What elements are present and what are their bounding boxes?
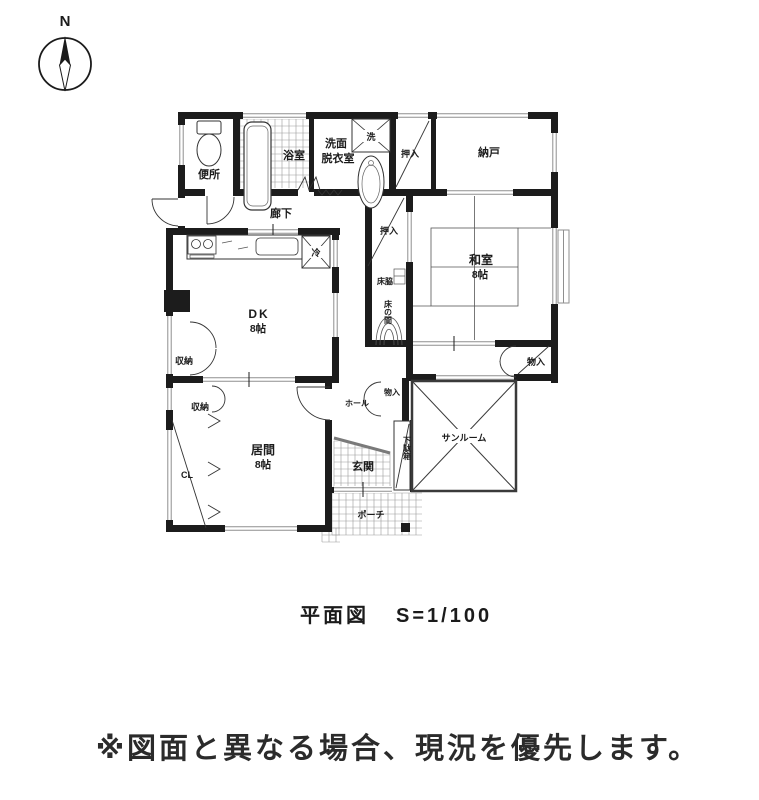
caption-scale: S=1/100 [396, 605, 492, 627]
toilet-bowl [197, 134, 221, 166]
label-tokonoma: 床の間 [383, 299, 393, 325]
label-corridor: 廊下 [270, 206, 292, 220]
opening-gap [166, 430, 173, 520]
wall-segment [365, 196, 372, 347]
label-fridge: 冷 [311, 247, 320, 258]
wall-segment [295, 376, 332, 383]
opening-gap [166, 316, 173, 374]
compass-needle-north [60, 36, 71, 65]
bathtub [244, 122, 271, 210]
wall-segment [309, 112, 314, 192]
door-arc [190, 322, 216, 348]
label-washroom-2: 脱衣室 [322, 151, 355, 165]
cl-bifold-door [208, 462, 220, 476]
wall-segment [325, 487, 334, 493]
label-sunroom: サンルーム [442, 433, 487, 443]
label-washitsu: 和室 [468, 252, 493, 267]
wall-segment [166, 525, 225, 532]
wall-segment [431, 119, 436, 189]
label-bath: 浴室 [283, 148, 305, 162]
door-arc [500, 346, 516, 362]
wall-segment [166, 376, 203, 383]
compass-needle-south [60, 59, 71, 91]
compass-north-label: N [60, 13, 71, 30]
label-dk-size: 8帖 [250, 322, 267, 335]
label-tokowaki: 床脇 [377, 276, 393, 286]
label-living-size: 8帖 [255, 458, 272, 471]
opening-gap [332, 240, 339, 267]
door-arc [364, 382, 381, 399]
label-closet-north: 押入 [401, 148, 419, 159]
wall-segment [325, 420, 332, 532]
door-arc [212, 399, 225, 412]
label-dk: DK [248, 307, 269, 321]
opening-gap [551, 228, 558, 304]
label-storage-east: 物入 [527, 356, 545, 367]
opening-gap [332, 293, 339, 337]
disclaimer-text: ※図面と異なる場合、現況を優先します。 [96, 732, 700, 765]
door-arc [152, 199, 178, 226]
wall-segment [402, 378, 409, 422]
label-washer: 洗 [366, 131, 375, 142]
cl-bifold-door [208, 414, 220, 428]
toilet-tank [197, 121, 221, 134]
opening-gap [447, 189, 513, 196]
label-shoe-cabinet: 下駄箱 [402, 436, 412, 461]
door-arc [190, 349, 216, 375]
opening-gap [178, 125, 185, 165]
label-storage-living: 収納 [191, 401, 209, 412]
porch-post [401, 523, 410, 532]
wall-segment [233, 112, 240, 196]
wall-segment [325, 383, 332, 389]
opening-gap [166, 388, 173, 410]
opening-gap [243, 112, 306, 119]
label-storeroom: 納戸 [478, 145, 500, 159]
label-cl: CL [181, 470, 193, 480]
door-arc [297, 387, 330, 420]
door-arc [207, 197, 234, 224]
compass: N [39, 13, 91, 91]
opening-gap [225, 525, 297, 532]
wall-segment [164, 290, 190, 312]
label-porch: ポーチ [357, 509, 384, 520]
opening-gap [398, 112, 428, 119]
label-closet-center: 押入 [380, 225, 398, 236]
label-storage-hall: 物入 [384, 387, 400, 397]
label-washitsu-size: 8帖 [472, 268, 489, 281]
label-toilet: 便所 [198, 167, 220, 181]
cl-bifold-door [208, 505, 220, 519]
wall-segment [406, 347, 413, 374]
label-hall: ホール [345, 399, 369, 408]
label-storage-dk: 収納 [175, 355, 193, 366]
wall-segment [297, 525, 332, 532]
opening-gap [406, 212, 413, 262]
floor-plan-drawing: N 便所 浴室 洗面 脱衣室 洗 押入 納戸 廊下 冷 DK 8帖 押入 和室 … [0, 0, 759, 800]
tokowaki-shelf [394, 269, 405, 284]
opening-gap [551, 133, 558, 172]
opening-gap [437, 112, 528, 119]
label-living: 居間 [251, 443, 275, 457]
wall-segment [365, 340, 413, 347]
wall-segment [166, 228, 248, 235]
label-entrance: 玄関 [352, 459, 374, 473]
wall-segment [178, 189, 205, 196]
caption-title: 平面図 [300, 605, 369, 627]
door-arc [212, 386, 225, 399]
floor-plan-page: N 便所 浴室 洗面 脱衣室 洗 押入 納戸 廊下 冷 DK 8帖 押入 和室 … [0, 0, 759, 800]
label-washroom-1: 洗面 [325, 136, 347, 150]
